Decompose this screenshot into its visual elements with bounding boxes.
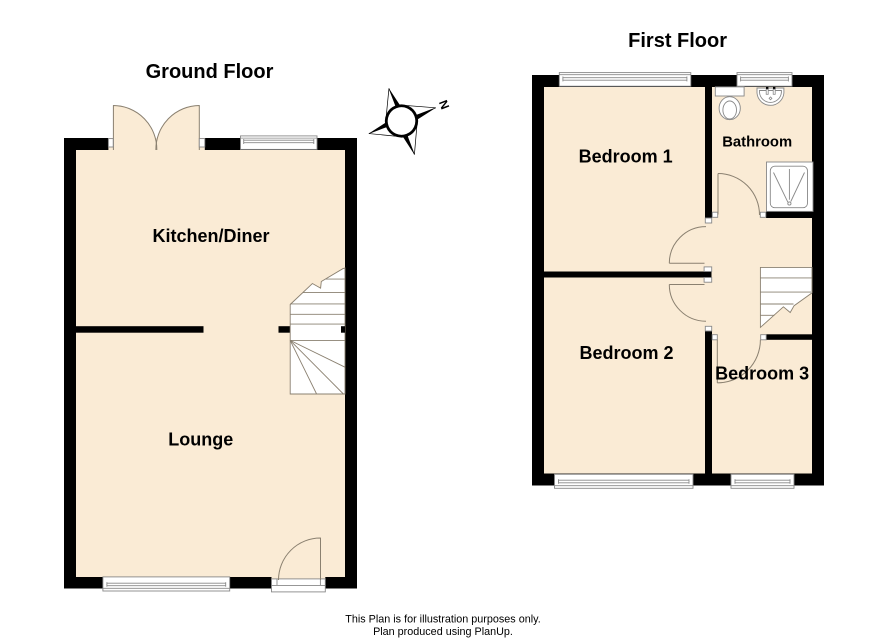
svg-text:First Floor: First Floor bbox=[628, 30, 727, 52]
svg-text:N: N bbox=[436, 98, 452, 111]
svg-text:Ground Floor: Ground Floor bbox=[146, 61, 274, 83]
svg-text:Bedroom 2: Bedroom 2 bbox=[579, 343, 673, 363]
svg-text:Bathroom: Bathroom bbox=[722, 134, 792, 150]
svg-text:Plan produced using PlanUp.: Plan produced using PlanUp. bbox=[373, 626, 513, 638]
svg-text:Bedroom 1: Bedroom 1 bbox=[579, 147, 673, 167]
svg-text:Lounge: Lounge bbox=[168, 430, 233, 450]
svg-text:Bedroom 3: Bedroom 3 bbox=[715, 364, 809, 384]
svg-text:This Plan is for illustration: This Plan is for illustration purposes o… bbox=[345, 614, 540, 626]
svg-text:Kitchen/Diner: Kitchen/Diner bbox=[152, 226, 269, 246]
